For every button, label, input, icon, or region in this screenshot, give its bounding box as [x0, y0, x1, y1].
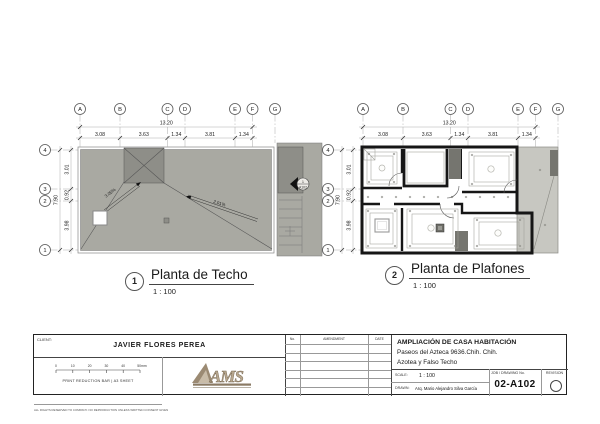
svg-text:0: 0	[55, 364, 57, 368]
svg-text:13.20: 13.20	[443, 120, 456, 126]
roof-drain	[164, 218, 169, 223]
project-subtitle: Azotea y Falso Techo	[397, 359, 457, 366]
grid-bubble-row: 4 3 2 1	[40, 145, 51, 256]
svg-text:C: C	[448, 107, 452, 113]
revision-label: REVISION	[541, 371, 568, 375]
light-fixture	[428, 225, 434, 231]
plan2-ceiling-plan	[362, 147, 558, 253]
scale-label: SCALE:	[395, 373, 408, 377]
svg-text:20: 20	[88, 364, 92, 368]
plan1-roof: 3.05% 2.01%	[78, 147, 274, 253]
svg-text:7.90: 7.90	[54, 195, 60, 205]
svg-text:3.08: 3.08	[95, 132, 105, 138]
drawn-label: DRAWN:	[395, 386, 409, 390]
svg-text:B: B	[118, 107, 122, 113]
title-block: CLIENT: JAVIER FLORES PEREA 0 10 20 30 4…	[33, 334, 567, 395]
scalebar-cell: 0 10 20 30 40 50mm PRINT REDUCTION BAR |…	[34, 357, 163, 396]
svg-text:G: G	[556, 107, 561, 113]
svg-text:E: E	[233, 107, 237, 113]
rev-col-amendment: AMENDMENT	[300, 337, 368, 341]
plan1-stair-strip: 1 A102	[277, 143, 322, 256]
revision-table: No. AMENDMENT DATE	[285, 335, 391, 396]
project-address: Paseos del Azteca 9636.Chih. Chih.	[397, 349, 497, 356]
plan1-number-bubble: 1	[125, 272, 144, 291]
plan2-title: 2 Planta de Plafones 1 : 100	[385, 261, 530, 290]
svg-text:40: 40	[121, 364, 125, 368]
svg-text:13.20: 13.20	[160, 120, 173, 126]
svg-text:A: A	[361, 107, 365, 113]
rights-text: ALL RIGHTS RESERVED TO COMPANY. NO REPRO…	[34, 408, 162, 412]
svg-text:3.63: 3.63	[139, 132, 149, 138]
grid-bubble-row: 4 3 2 1	[323, 145, 334, 256]
svg-text:F: F	[534, 107, 538, 113]
ceiling-room-bottom-left	[366, 209, 397, 248]
light-fixture	[495, 230, 501, 236]
svg-text:AMS: AMS	[209, 367, 243, 386]
svg-text:0.92: 0.92	[65, 190, 71, 200]
svg-text:3: 3	[43, 187, 46, 193]
svg-text:G: G	[273, 107, 278, 113]
svg-text:3.81: 3.81	[488, 132, 498, 138]
light-fixture	[379, 165, 385, 171]
svg-text:3.08: 3.08	[378, 132, 388, 138]
svg-text:E: E	[516, 107, 520, 113]
print-reduction-bar: 0 10 20 30 40 50mm	[44, 360, 156, 376]
revision-cell: REVISION	[541, 369, 568, 396]
patio-void	[404, 149, 447, 186]
svg-text:50mm: 50mm	[137, 364, 147, 368]
plan1-title: 1 Planta de Techo 1 : 100	[125, 267, 254, 296]
rev-col-no: No.	[285, 337, 300, 341]
svg-text:1: 1	[326, 248, 329, 254]
ceiling-room-top-right	[469, 152, 514, 186]
svg-text:3: 3	[326, 187, 329, 193]
grid-bubble-col: A B C D E F G	[75, 104, 281, 115]
rev-col-date: DATE	[368, 337, 391, 341]
scale-row: SCALE: 1 : 100	[391, 369, 489, 383]
closet	[449, 149, 461, 179]
scalebar-label: PRINT REDUCTION BAR | A3 SHEET	[34, 379, 162, 383]
roof-drain-box	[93, 211, 107, 225]
svg-text:1.34: 1.34	[454, 132, 464, 138]
svg-text:7.90: 7.90	[336, 195, 342, 205]
client-name: JAVIER FLORES PEREA	[34, 342, 285, 349]
plan1-scale-text: 1 : 100	[149, 285, 254, 296]
svg-text:D: D	[183, 107, 187, 113]
svg-text:2: 2	[326, 199, 329, 205]
plan2-title-text: Planta de Plafones	[409, 261, 530, 279]
company-logo: AMS	[184, 360, 264, 392]
svg-text:D: D	[466, 107, 470, 113]
svg-text:3.01: 3.01	[347, 164, 353, 174]
plan2-number-bubble: 2	[385, 266, 404, 285]
ceiling-skylight	[375, 219, 389, 232]
svg-text:3.98: 3.98	[65, 220, 71, 230]
project-info: AMPLIACIÓN DE CASA HABITACIÓN Paseos del…	[391, 335, 568, 396]
svg-text:C: C	[165, 107, 169, 113]
svg-text:B: B	[401, 107, 405, 113]
svg-text:3.81: 3.81	[205, 132, 215, 138]
plan1-title-text: Planta de Techo	[149, 267, 254, 285]
plan2-scale-text: 1 : 100	[409, 279, 530, 290]
revision-circle	[550, 380, 562, 392]
drawn-row: DRAWN: Arq. Mario Alejandro Silva García	[391, 382, 489, 396]
svg-text:1: 1	[302, 180, 304, 184]
svg-text:A102: A102	[299, 186, 307, 190]
job-cell: JOB / DRAWING No. 02-A102	[489, 369, 541, 396]
drawn-value: Arq. Mario Alejandro Silva García	[415, 386, 477, 391]
terrace-closet	[550, 150, 558, 176]
svg-text:0.92: 0.92	[347, 190, 353, 200]
svg-text:10: 10	[71, 364, 75, 368]
svg-text:A: A	[78, 107, 82, 113]
client-cell: CLIENT: JAVIER FLORES PEREA	[34, 335, 285, 358]
job-number: 02-A102	[489, 379, 541, 390]
logo-cell: AMS	[162, 357, 285, 396]
ceiling-room-top-left	[364, 149, 397, 184]
job-label: JOB / DRAWING No.	[491, 371, 525, 375]
svg-text:F: F	[251, 107, 255, 113]
svg-text:3.98: 3.98	[347, 220, 353, 230]
svg-text:1.34: 1.34	[239, 132, 249, 138]
drawing-sheet: A B C D E F G 4 3 2 1 13.20 3.08 3.63 1.…	[0, 0, 600, 424]
svg-text:2: 2	[43, 199, 46, 205]
light-fixture	[488, 166, 494, 172]
scale-value: 1 : 100	[419, 373, 435, 379]
grid-bubble-col: A B C D E F G	[358, 104, 564, 115]
svg-text:1.34: 1.34	[171, 132, 181, 138]
svg-text:3.01: 3.01	[65, 164, 71, 174]
svg-text:30: 30	[105, 364, 109, 368]
project-title: AMPLIACIÓN DE CASA HABITACIÓN	[397, 339, 516, 346]
svg-text:3.63: 3.63	[422, 132, 432, 138]
svg-text:1.34: 1.34	[522, 132, 532, 138]
ceiling-room-bottom-center	[407, 209, 458, 248]
ceiling-room-bottom-right	[474, 218, 524, 249]
svg-text:1: 1	[43, 248, 46, 254]
